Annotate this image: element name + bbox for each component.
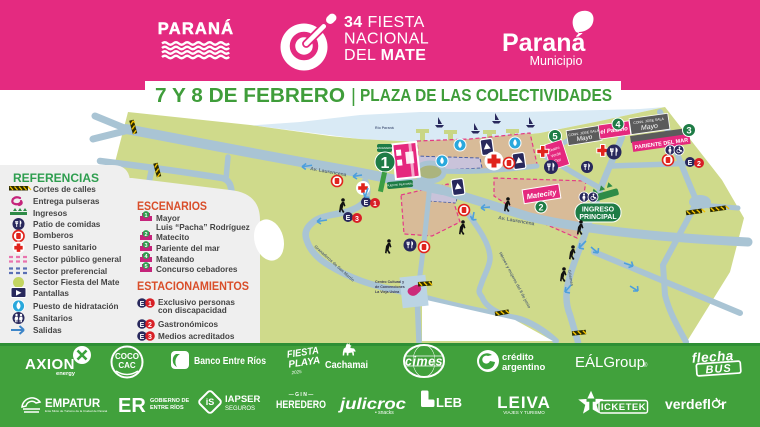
svg-text:DEL MATE: DEL MATE	[344, 47, 426, 64]
svg-text:Patio de comidas: Patio de comidas	[33, 220, 101, 229]
svg-text:EÁLGroup: EÁLGroup	[575, 354, 645, 371]
svg-text:GOBIERNO DE: GOBIERNO DE	[150, 398, 189, 404]
svg-text:Gastronómicos: Gastronómicos	[158, 320, 219, 329]
svg-text:NACIONAL: NACIONAL	[344, 31, 429, 48]
svg-text:2: 2	[538, 203, 543, 213]
svg-text:Matecito: Matecito	[156, 233, 189, 242]
svg-text:Pantallas: Pantallas	[33, 289, 69, 298]
svg-text:34 FIESTA: 34 FIESTA	[344, 14, 425, 31]
svg-text:Concurso cebadores: Concurso cebadores	[156, 265, 238, 274]
svg-text:2: 2	[697, 161, 701, 168]
svg-text:Banco Entre Ríos: Banco Entre Ríos	[194, 356, 266, 367]
svg-text:argentino: argentino	[502, 362, 545, 373]
svg-text:— G I N —: — G I N —	[289, 392, 313, 398]
svg-text:HEREDERO: HEREDERO	[276, 399, 326, 411]
svg-text:energy: energy	[56, 371, 76, 377]
svg-text:E: E	[140, 334, 145, 341]
svg-text:• snacks: • snacks	[375, 410, 394, 416]
svg-text:E: E	[346, 215, 351, 222]
svg-text:E: E	[364, 200, 369, 207]
svg-text:7 Y 8 DE FEBRERO: 7 Y 8 DE FEBRERO	[155, 85, 345, 107]
svg-text:COCO: COCO	[115, 352, 139, 361]
svg-text:ENTRE RÍOS: ENTRE RÍOS	[150, 403, 184, 411]
svg-text:3: 3	[686, 126, 691, 137]
svg-text:Sector preferencial: Sector preferencial	[33, 267, 107, 276]
svg-text:iS: iS	[206, 397, 215, 407]
svg-text:SEGUROS: SEGUROS	[225, 406, 255, 412]
svg-text:1: 1	[381, 155, 390, 172]
svg-text:Salidas: Salidas	[33, 326, 62, 335]
svg-text:REFERENCIAS: REFERENCIAS	[13, 171, 99, 185]
svg-text:ESCENARIOS: ESCENARIOS	[137, 199, 207, 213]
svg-text:Cachamai: Cachamai	[325, 359, 368, 371]
svg-text:2: 2	[148, 322, 152, 329]
svg-text:Sector Fiesta del Mate: Sector Fiesta del Mate	[33, 278, 120, 287]
svg-text:Cortes de calles: Cortes de calles	[33, 185, 96, 194]
svg-text:LEB: LEB	[436, 395, 462, 410]
svg-text:Pariente del mar: Pariente del mar	[156, 244, 221, 253]
svg-text:®: ®	[643, 362, 648, 369]
svg-text:E: E	[140, 301, 145, 308]
svg-text:CAC: CAC	[118, 361, 136, 370]
svg-text:3: 3	[144, 243, 147, 249]
svg-text:Municipio: Municipio	[530, 54, 583, 68]
svg-text:Sanitarios: Sanitarios	[33, 314, 73, 323]
svg-text:cimes: cimes	[405, 355, 443, 369]
svg-text:julicroc: julicroc	[338, 396, 406, 413]
svg-text:de Convenciones: de Convenciones	[375, 285, 405, 289]
svg-text:Ente Mixto de Turismo de la Ci: Ente Mixto de Turismo de la Ciudad de Pa…	[45, 409, 108, 413]
svg-text:BUS: BUS	[705, 363, 732, 377]
svg-text:INGRESO: INGRESO	[582, 207, 615, 214]
svg-text:Luis “Pacha” Rodríguez: Luis “Pacha” Rodríguez	[156, 223, 250, 232]
svg-text:PLAZA DE LAS COLECTIVIDADES: PLAZA DE LAS COLECTIVIDADES	[360, 85, 612, 105]
svg-text:Medios acreditados: Medios acreditados	[158, 332, 235, 341]
svg-text:|: |	[351, 86, 356, 107]
svg-text:Mateando: Mateando	[156, 255, 194, 264]
svg-text:Paraná: Paraná	[502, 29, 585, 57]
svg-text:3: 3	[148, 334, 152, 341]
svg-text:Mayor: Mayor	[156, 214, 181, 223]
svg-text:con discapacidad: con discapacidad	[158, 306, 227, 315]
svg-text:Puesto de hidratación: Puesto de hidratación	[33, 302, 119, 311]
svg-text:E: E	[140, 322, 145, 329]
svg-text:Sector público general: Sector público general	[33, 255, 121, 264]
svg-text:Entrega pulseras: Entrega pulseras	[33, 197, 100, 206]
svg-text:2: 2	[144, 232, 147, 238]
svg-text:verdefl: verdefl	[665, 396, 711, 412]
svg-text:Puesto sanitario: Puesto sanitario	[33, 243, 97, 252]
svg-text:La Vieja Usina: La Vieja Usina	[375, 290, 400, 294]
svg-text:1: 1	[373, 201, 377, 208]
svg-text:PRINCIPAL: PRINCIPAL	[579, 214, 617, 221]
svg-text:5: 5	[144, 264, 147, 270]
svg-text:Centro Cultural y: Centro Cultural y	[375, 280, 404, 284]
svg-text:Ingresos: Ingresos	[33, 209, 68, 218]
svg-text:IAPSER: IAPSER	[225, 394, 261, 405]
svg-text:ESCENARIO: ESCENARIO	[377, 146, 392, 150]
svg-text:ICKETEK: ICKETEK	[601, 402, 646, 413]
svg-text:PARANÁ: PARANÁ	[158, 19, 235, 38]
svg-text:4: 4	[615, 120, 620, 130]
svg-text:VIAJES Y TURISMO: VIAJES Y TURISMO	[503, 410, 545, 415]
svg-text:3: 3	[355, 216, 359, 223]
svg-text:r: r	[721, 396, 727, 412]
svg-text:ESTACIONAMIENTOS: ESTACIONAMIENTOS	[137, 279, 249, 293]
svg-text:ER: ER	[118, 395, 146, 417]
svg-text:Bomberos: Bomberos	[33, 231, 74, 240]
svg-text:1: 1	[144, 213, 147, 219]
svg-text:Río Paraná: Río Paraná	[375, 126, 394, 130]
svg-text:E: E	[688, 160, 693, 167]
svg-text:1: 1	[148, 301, 152, 308]
